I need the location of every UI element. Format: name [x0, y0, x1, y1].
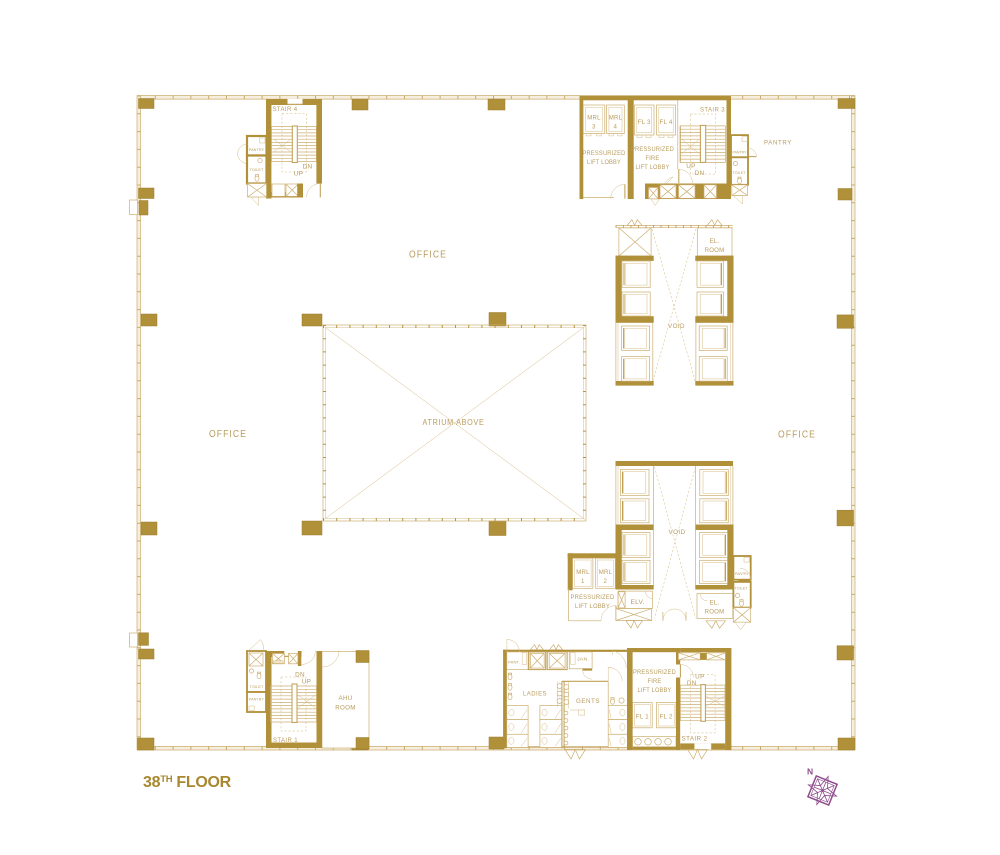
- svg-text:OFFICE: OFFICE: [409, 250, 447, 261]
- svg-text:AHU: AHU: [339, 695, 353, 702]
- svg-text:38TH FLOOR: 38TH FLOOR: [143, 774, 232, 791]
- svg-text:UP: UP: [686, 163, 695, 170]
- svg-text:ELV.: ELV.: [631, 599, 645, 606]
- svg-text:DN: DN: [695, 170, 705, 177]
- svg-text:UP: UP: [302, 679, 311, 686]
- svg-text:TOILET: TOILET: [735, 587, 749, 591]
- svg-text:1: 1: [581, 578, 585, 585]
- svg-text:3: 3: [592, 124, 596, 131]
- svg-text:OFFICE: OFFICE: [778, 430, 816, 441]
- svg-text:PANTRY: PANTRY: [764, 140, 792, 147]
- svg-text:FL 3: FL 3: [638, 119, 651, 126]
- svg-text:VOID: VOID: [668, 323, 685, 330]
- svg-text:VOID: VOID: [669, 529, 686, 536]
- svg-text:OFFICE: OFFICE: [209, 429, 247, 440]
- svg-text:ROOM: ROOM: [705, 247, 725, 254]
- svg-text:PANTRY: PANTRY: [733, 151, 747, 155]
- svg-text:PRESSURIZED: PRESSURIZED: [633, 669, 676, 676]
- svg-text:FL 2: FL 2: [660, 714, 673, 721]
- svg-text:STAIR 3: STAIR 3: [700, 107, 725, 114]
- svg-text:PANT.: PANT.: [508, 660, 520, 665]
- svg-text:FL 4: FL 4: [660, 119, 673, 126]
- svg-text:EL.: EL.: [710, 238, 720, 245]
- svg-text:LIFT LOBBY: LIFT LOBBY: [587, 159, 621, 166]
- svg-text:ROOM: ROOM: [705, 609, 725, 616]
- svg-text:PANTRY: PANTRY: [249, 697, 264, 702]
- svg-text:PRESSURIZED: PRESSURIZED: [571, 594, 615, 601]
- svg-text:N: N: [807, 767, 813, 777]
- svg-text:JAN.: JAN.: [577, 657, 589, 662]
- svg-text:ROOM: ROOM: [335, 705, 355, 712]
- svg-text:LIFT LOBBY: LIFT LOBBY: [638, 687, 672, 694]
- svg-text:STAIR 1: STAIR 1: [273, 737, 298, 744]
- svg-text:STAIR 2: STAIR 2: [682, 736, 708, 743]
- svg-text:PRESSURIZED: PRESSURIZED: [583, 150, 626, 157]
- svg-text:DN: DN: [303, 163, 313, 170]
- svg-text:FIRE: FIRE: [646, 155, 660, 162]
- svg-text:2: 2: [604, 578, 608, 585]
- svg-text:TOILET: TOILET: [733, 171, 747, 175]
- svg-text:DN: DN: [295, 672, 305, 679]
- svg-text:DN: DN: [687, 680, 697, 687]
- svg-text:TOILET: TOILET: [250, 167, 265, 172]
- svg-text:STAIR 4: STAIR 4: [273, 106, 298, 113]
- svg-text:GENTS: GENTS: [576, 698, 600, 705]
- svg-text:FIRE: FIRE: [648, 678, 662, 685]
- svg-text:PANTRY: PANTRY: [249, 147, 265, 152]
- svg-text:TOILET: TOILET: [250, 684, 265, 689]
- svg-text:LIFT LOBBY: LIFT LOBBY: [575, 603, 610, 610]
- svg-text:MRL: MRL: [609, 115, 623, 122]
- svg-text:FL 1: FL 1: [636, 714, 649, 721]
- svg-text:4: 4: [614, 124, 618, 131]
- svg-text:MRL: MRL: [599, 569, 613, 576]
- svg-text:EL.: EL.: [710, 600, 720, 607]
- svg-text:MRL: MRL: [587, 115, 601, 122]
- svg-text:UP: UP: [294, 171, 303, 178]
- svg-text:PRESSURIZED: PRESSURIZED: [631, 146, 674, 153]
- svg-text:LIFT LOBBY: LIFT LOBBY: [636, 164, 670, 171]
- svg-text:PANTRY: PANTRY: [735, 572, 749, 576]
- svg-text:ATRIUM ABOVE: ATRIUM ABOVE: [423, 418, 485, 427]
- svg-text:MRL: MRL: [576, 569, 590, 576]
- svg-text:LADIES: LADIES: [523, 691, 547, 698]
